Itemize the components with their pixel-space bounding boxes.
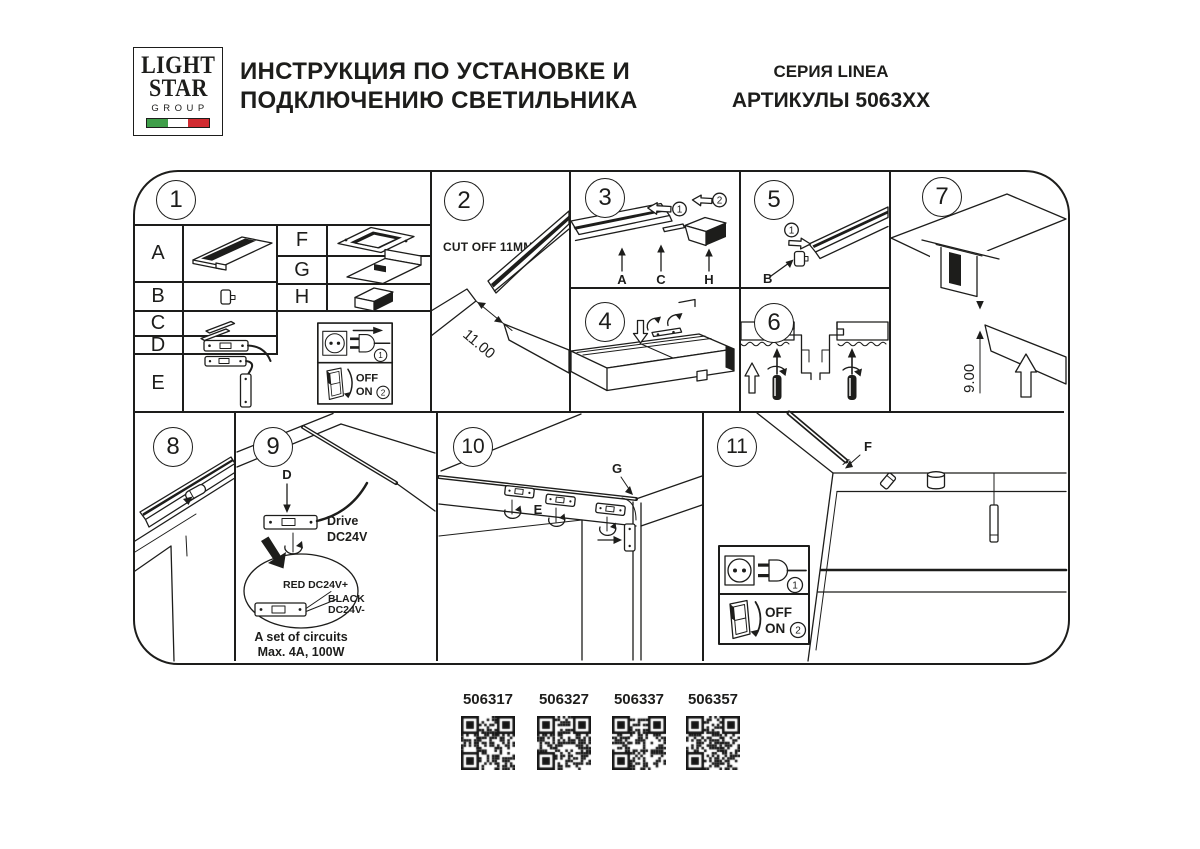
lightstar-logo: LIGHT STAR GROUP <box>133 47 223 136</box>
qr-article-506317: 506317 <box>446 691 530 708</box>
series-name: СЕРИЯ LINEA <box>716 62 946 82</box>
panel-7-drawing: 9.00 <box>891 170 1068 412</box>
off-label: OFF <box>356 373 378 385</box>
driver-icon <box>596 503 626 516</box>
power-steps-box: 1 OFF ON 2 <box>317 322 393 405</box>
step-5-badge: 5 <box>754 180 794 220</box>
end-cap-icon <box>795 252 805 267</box>
svg-text:F: F <box>864 439 872 454</box>
svg-text:1: 1 <box>677 205 683 216</box>
power-steps-box: 1 OFF ON 2 <box>718 545 810 645</box>
circuits-note-2: Max. 4A, 100W <box>258 645 345 659</box>
svg-text:1: 1 <box>378 351 383 360</box>
drive-voltage-label: DC24V <box>327 530 368 544</box>
logo-word-star: STAR <box>149 77 208 100</box>
connector-pin-icon <box>663 224 684 232</box>
part-a-icon <box>193 237 272 270</box>
svg-text:2: 2 <box>795 626 801 637</box>
pendant-light-icon <box>990 473 998 542</box>
switch-icon <box>327 368 344 399</box>
svg-text:2: 2 <box>381 388 386 397</box>
black-wire-voltage: DC24V- <box>328 604 365 616</box>
qr-code <box>612 716 666 770</box>
part-e-icon <box>205 357 252 408</box>
logo-word-group: GROUP <box>151 103 208 114</box>
step-3-badge: 3 <box>585 178 625 218</box>
svg-text:A: A <box>617 272 627 287</box>
instruction-sheet: LIGHT STAR GROUP ИНСТРУКЦИЯ ПО УСТАНОВКЕ… <box>0 0 1200 849</box>
svg-text:B: B <box>763 271 772 286</box>
driver-icon <box>264 516 317 530</box>
corner-piece-icon <box>685 218 726 246</box>
step-6-badge: 6 <box>754 303 794 343</box>
grid-line <box>234 413 236 661</box>
cylinder-light-icon <box>928 472 945 489</box>
parts-pictograms <box>183 225 432 412</box>
red-wire-label: RED DC24V+ <box>283 579 348 591</box>
spot-light-icon <box>880 472 897 489</box>
qr-code <box>461 716 515 770</box>
zoom-arrow-icon <box>261 537 286 569</box>
part-letter-b: B <box>133 282 183 311</box>
step-4-badge: 4 <box>585 302 625 342</box>
part-g-icon <box>347 250 421 284</box>
part-letter-c: C <box>133 311 183 336</box>
dimension-9mm: 9.00 <box>961 364 978 393</box>
logo-word-light: LIGHT <box>141 54 215 77</box>
part-c-icon <box>201 322 235 341</box>
switch-icon <box>730 601 750 639</box>
title-line-1: ИНСТРУКЦИЯ ПО УСТАНОВКЕ И <box>240 57 638 86</box>
part-letter-e: E <box>133 354 183 412</box>
up-arrow-icon <box>1016 354 1037 397</box>
qr-article-506327: 506327 <box>522 691 606 708</box>
italian-flag-icon <box>146 118 210 128</box>
svg-text:1: 1 <box>792 581 798 592</box>
svg-text:D: D <box>282 467 291 482</box>
down-arrow-icon <box>634 321 648 344</box>
insert-arrow-icon <box>789 238 811 249</box>
circuits-note-1: A set of circuits <box>254 630 347 644</box>
on-label: ON <box>356 386 373 398</box>
screwdriver-icon <box>843 348 862 400</box>
step-10-badge: 10 <box>453 427 493 467</box>
svg-text:G: G <box>612 461 622 476</box>
title-line-2: ПОДКЛЮЧЕНИЮ СВЕТИЛЬНИКА <box>240 86 638 115</box>
part-letter-a: A <box>133 225 183 282</box>
screwdriver-icon <box>768 348 787 400</box>
part-f-icon <box>338 228 414 253</box>
step-11-badge: 11 <box>717 427 757 467</box>
svg-text:1: 1 <box>789 226 795 237</box>
page-title: ИНСТРУКЦИЯ ПО УСТАНОВКЕ И ПОДКЛЮЧЕНИЮ СВ… <box>240 57 638 115</box>
series-block: СЕРИЯ LINEA АРТИКУЛЫ 5063XX <box>716 62 946 113</box>
qr-code <box>537 716 591 770</box>
step-8-badge: 8 <box>153 427 193 467</box>
qr-code <box>686 716 740 770</box>
qr-article-506357: 506357 <box>671 691 755 708</box>
articles: АРТИКУЛЫ 5063XX <box>716 89 946 113</box>
step-9-badge: 9 <box>253 427 293 467</box>
detail-callout <box>244 554 358 628</box>
svg-text:C: C <box>656 272 666 287</box>
up-arrow-icon <box>745 363 759 393</box>
qr-article-506337: 506337 <box>597 691 681 708</box>
part-h-icon <box>355 288 393 311</box>
on-label: ON <box>765 621 785 636</box>
svg-text:2: 2 <box>717 196 723 207</box>
panel-2-drawing: 11.00 <box>431 225 570 412</box>
step-1-badge: 1 <box>156 180 196 220</box>
svg-text:E: E <box>534 502 543 517</box>
off-label: OFF <box>765 605 792 620</box>
drive-label: Drive <box>327 514 358 528</box>
connector-pin-icon <box>652 328 682 336</box>
driver-icon <box>255 603 306 616</box>
step-7-badge: 7 <box>922 177 962 217</box>
svg-text:H: H <box>704 272 713 287</box>
step-2-badge: 2 <box>444 181 484 221</box>
dimension-11mm: 11.00 <box>459 326 498 362</box>
driver-icon <box>546 494 576 507</box>
insert-arrow-icon <box>692 195 712 206</box>
track-profile-icon <box>788 322 844 380</box>
part-b-icon <box>221 290 235 304</box>
part-letter-d: D <box>133 336 183 354</box>
